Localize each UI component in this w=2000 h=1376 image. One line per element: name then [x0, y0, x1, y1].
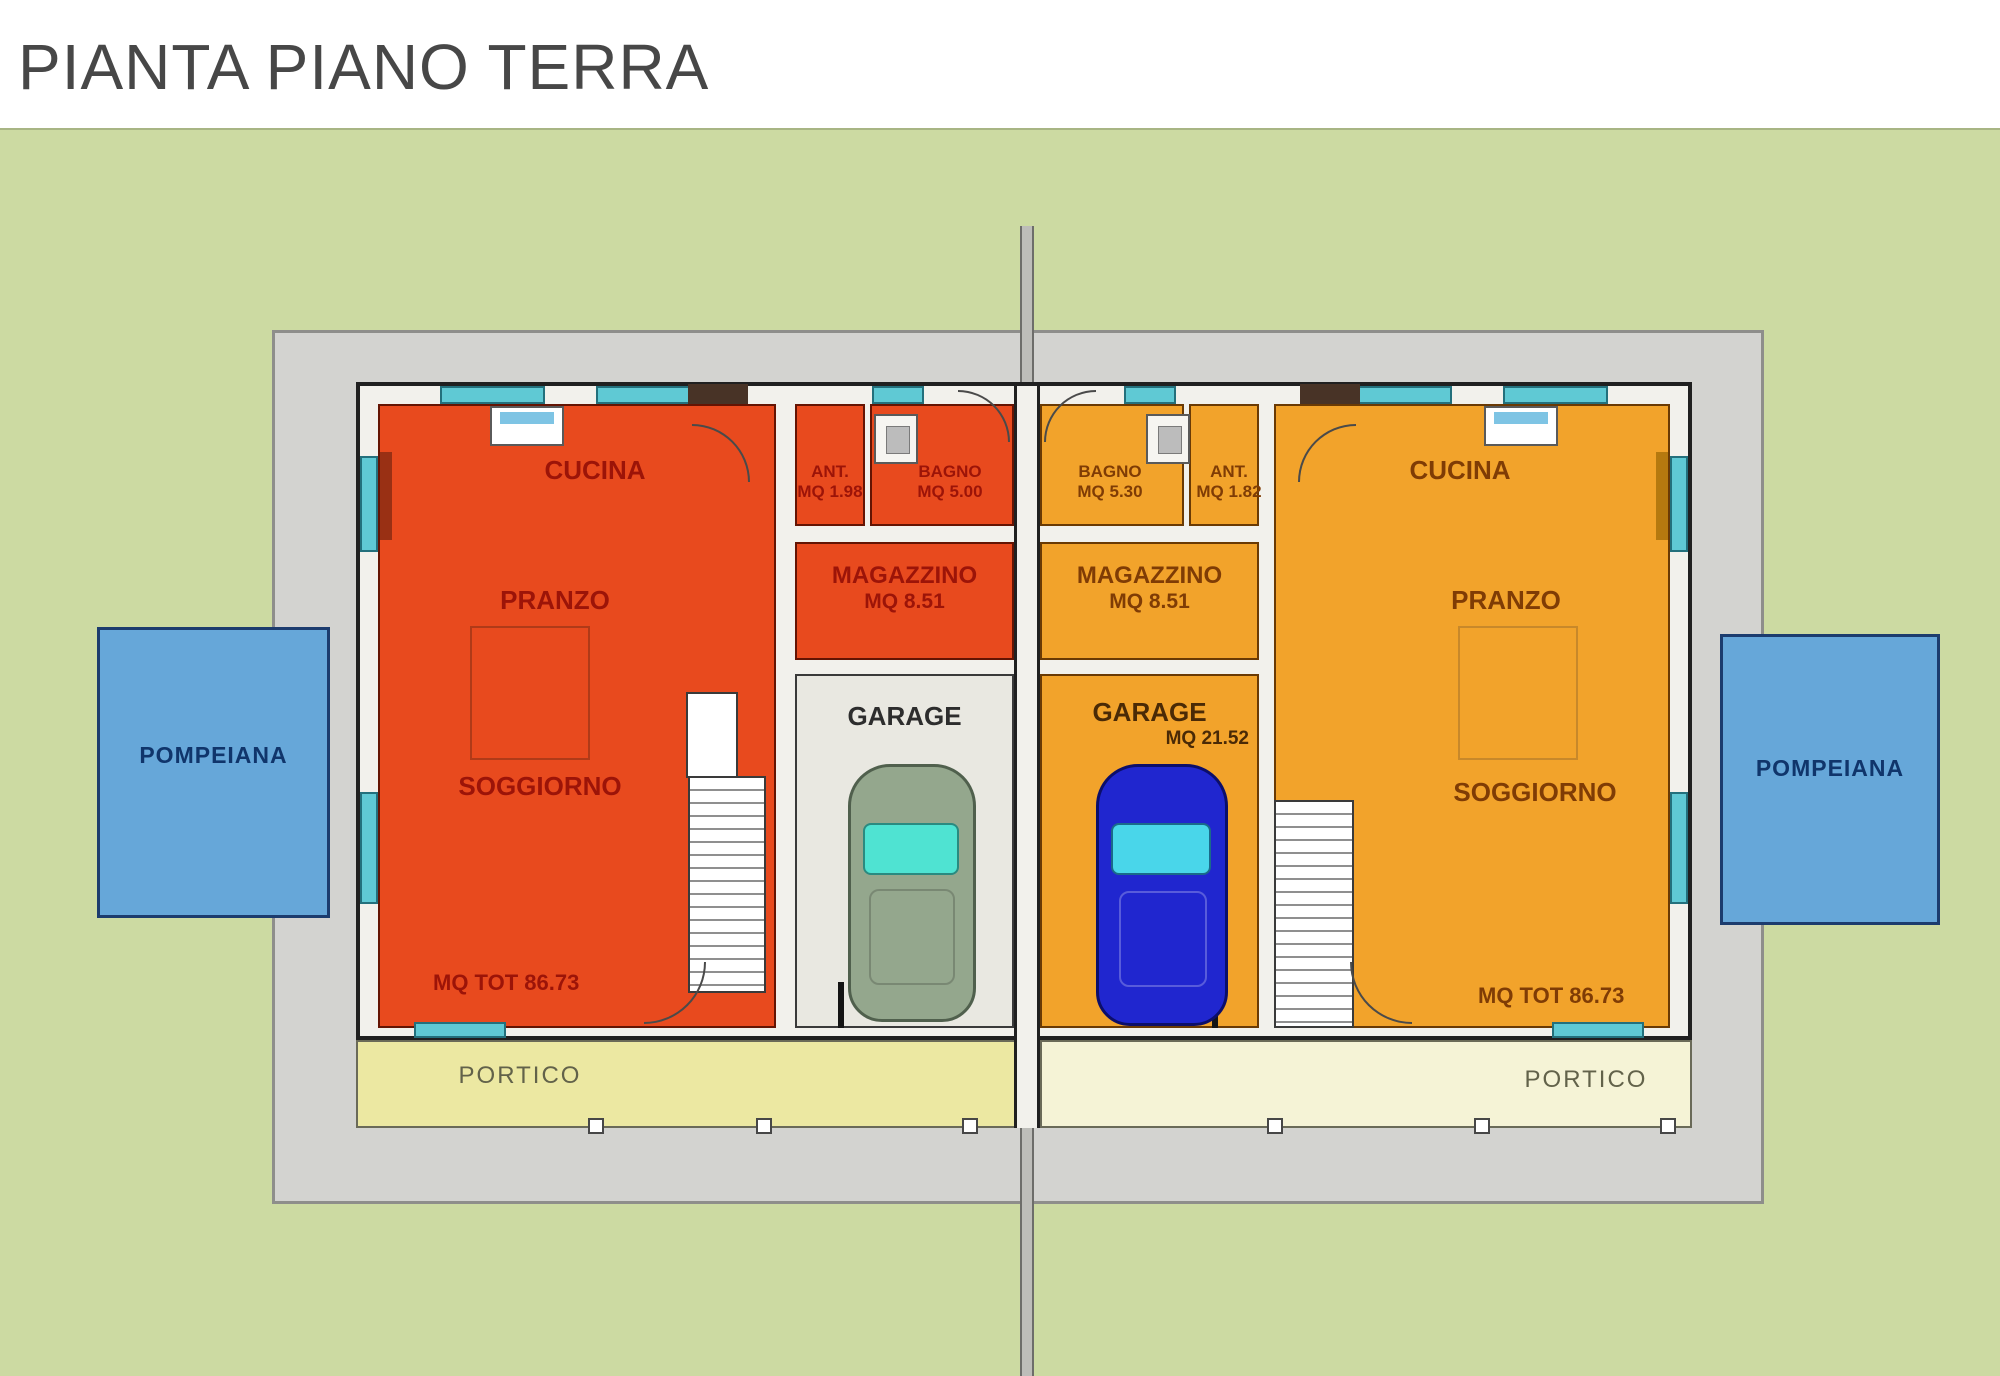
car-top-view-right — [1096, 764, 1228, 1026]
window — [872, 386, 924, 404]
ant-right-area: MQ 1.82 — [1184, 482, 1274, 502]
window — [1670, 792, 1688, 904]
window — [1503, 386, 1608, 404]
pompeiana-right: POMPEIANA — [1720, 634, 1940, 925]
total-area-right: MQ TOT 86.73 — [1478, 983, 1708, 1008]
ant-right-name: ANT. — [1184, 462, 1274, 482]
ant-left-area: MQ 1.98 — [785, 482, 875, 502]
room-label-pranzo-right: PRANZO — [1406, 586, 1606, 616]
garage-right-area: MQ 21.52 — [1040, 728, 1259, 750]
window — [414, 1022, 506, 1038]
stairwell-notch-left — [686, 692, 738, 778]
sink-icon — [1146, 414, 1190, 464]
portico-right-label: PORTICO — [1496, 1066, 1676, 1094]
room-label-pranzo-left: PRANZO — [455, 586, 655, 616]
room-label-magazzino-right: MAGAZZINO MQ 8.51 — [1040, 562, 1259, 614]
garage-right-name: GARAGE — [1040, 698, 1259, 728]
magazzino-left-area: MQ 8.51 — [795, 590, 1014, 614]
total-area-left: MQ TOT 86.73 — [433, 970, 663, 995]
room-label-magazzino-left: MAGAZZINO MQ 8.51 — [795, 562, 1014, 614]
window — [360, 792, 378, 904]
magazzino-left-name: MAGAZZINO — [795, 562, 1014, 590]
portico-pillar — [1267, 1118, 1283, 1134]
room-label-garage-right: GARAGE MQ 21.52 — [1040, 698, 1259, 750]
bagno-right-area: MQ 5.30 — [1040, 482, 1180, 502]
pompeiana-right-label: POMPEIANA — [1723, 755, 1937, 781]
window — [1670, 456, 1688, 552]
window — [1552, 1022, 1644, 1038]
window — [1348, 386, 1452, 404]
car-roof — [1119, 891, 1207, 987]
room-label-bagno-right: BAGNO MQ 5.30 — [1040, 462, 1180, 501]
boundary-fence-bottom — [1020, 1128, 1034, 1376]
sink-icon — [874, 414, 918, 464]
car-windshield — [1111, 823, 1211, 875]
magazzino-right-name: MAGAZZINO — [1040, 562, 1259, 590]
ant-left-name: ANT. — [785, 462, 875, 482]
window — [440, 386, 545, 404]
kitchen-counter — [1484, 406, 1558, 446]
portico-pillar — [756, 1118, 772, 1134]
door-leaf — [838, 982, 844, 1028]
window — [360, 456, 378, 552]
bagno-left-area: MQ 5.00 — [880, 482, 1020, 502]
room-label-ant-right: ANT. MQ 1.82 — [1184, 462, 1274, 501]
pompeiana-left: POMPEIANA — [97, 627, 330, 918]
portico-left-label: PORTICO — [430, 1062, 610, 1090]
kitchen-sink-icon — [500, 412, 554, 424]
window — [1124, 386, 1176, 404]
room-label-bagno-left: BAGNO MQ 5.00 — [880, 462, 1020, 501]
bagno-left-name: BAGNO — [880, 462, 1020, 482]
door-lintel — [688, 384, 748, 404]
stairs-left — [688, 776, 766, 993]
radiator — [1656, 452, 1668, 540]
room-label-cucina-right: CUCINA — [1360, 456, 1560, 486]
floor-plan-page: PIANTA PIANO TERRA POMPEIANA POMPEIANA P… — [0, 0, 2000, 1376]
table-outline — [1458, 626, 1578, 760]
bagno-right-name: BAGNO — [1040, 462, 1180, 482]
door-lintel — [1300, 384, 1360, 404]
car-top-view-left — [848, 764, 976, 1022]
boundary-fence-top — [1020, 226, 1034, 386]
kitchen-sink-icon — [1494, 412, 1548, 424]
radiator — [380, 452, 392, 540]
portico-pillar — [588, 1118, 604, 1134]
room-label-soggiorno-left: SOGGIORNO — [425, 772, 655, 802]
room-label-soggiorno-right: SOGGIORNO — [1420, 778, 1650, 808]
room-label-cucina-left: CUCINA — [495, 456, 695, 486]
table-outline — [470, 626, 590, 760]
room-label-garage-left: GARAGE — [795, 702, 1014, 732]
portico-pillar — [962, 1118, 978, 1134]
room-label-ant-left: ANT. MQ 1.98 — [785, 462, 875, 501]
portico-pillar — [1660, 1118, 1676, 1134]
page-title: PIANTA PIANO TERRA — [18, 30, 709, 104]
stairs-right — [1274, 800, 1354, 1028]
window — [596, 386, 700, 404]
portico-pillar — [1474, 1118, 1490, 1134]
car-windshield — [863, 823, 959, 875]
pompeiana-left-label: POMPEIANA — [100, 742, 327, 768]
magazzino-right-area: MQ 8.51 — [1040, 590, 1259, 614]
kitchen-counter — [490, 406, 564, 446]
car-roof — [869, 889, 955, 985]
